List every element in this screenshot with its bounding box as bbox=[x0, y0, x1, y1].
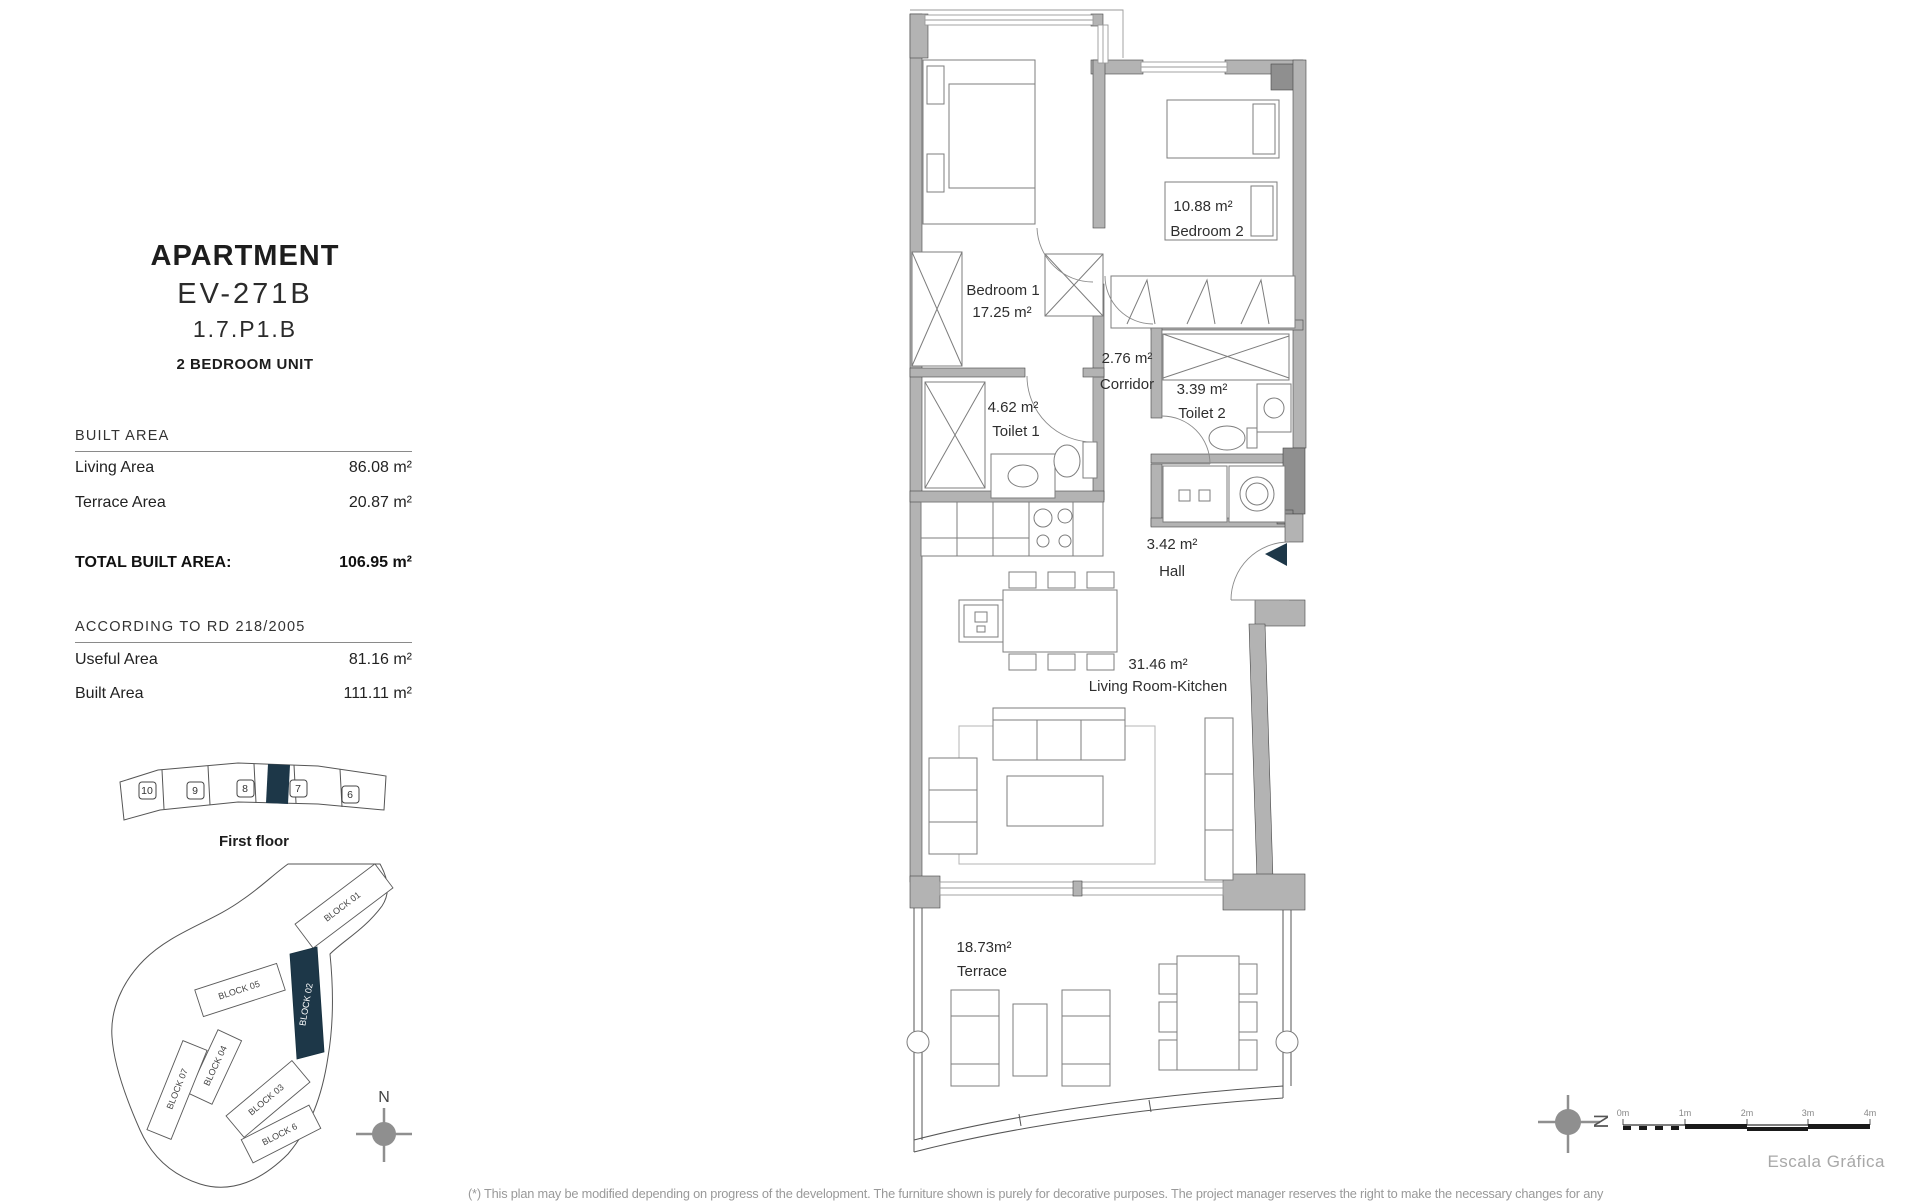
living-area: 31.46 m² bbox=[1128, 656, 1187, 673]
chaise-lounge bbox=[929, 758, 977, 854]
toilet1-area: 4.62 m² bbox=[988, 399, 1039, 416]
chair bbox=[1159, 1040, 1177, 1070]
toilet2-name: Toilet 2 bbox=[1178, 405, 1226, 422]
outdoor-dining-table bbox=[1177, 956, 1239, 1070]
scale-tick: 3m bbox=[1802, 1108, 1815, 1118]
unit-number: 8 bbox=[242, 783, 248, 795]
unit-type: 2 BEDROOM UNIT bbox=[85, 356, 405, 373]
chair bbox=[1159, 1002, 1177, 1032]
toilet2-area: 3.39 m² bbox=[1177, 381, 1228, 398]
chair bbox=[1239, 1040, 1257, 1070]
area-label: Terrace Area bbox=[75, 494, 166, 512]
column bbox=[1276, 1031, 1298, 1053]
terrace-balustrade bbox=[914, 1086, 1283, 1152]
total-built-area-row: TOTAL BUILT AREA: 106.95 m² bbox=[75, 554, 412, 572]
unit-code: EV-271B bbox=[85, 278, 405, 311]
tv-sideboard bbox=[1205, 718, 1233, 880]
unit-badges: 10 9 8 7 6 bbox=[139, 780, 359, 803]
lounge-chair bbox=[1062, 990, 1110, 1086]
toilet2-fixtures bbox=[1163, 334, 1291, 522]
chair bbox=[1239, 1002, 1257, 1032]
hall-area: 3.42 m² bbox=[1147, 536, 1198, 553]
wardrobe bbox=[1111, 276, 1295, 328]
area-label: Useful Area bbox=[75, 651, 158, 669]
bedroom1-area: 17.25 m² bbox=[972, 304, 1031, 321]
area-value: 111.11 m² bbox=[344, 685, 412, 703]
north-label: N bbox=[1589, 1114, 1611, 1128]
sink bbox=[1257, 384, 1291, 432]
column bbox=[907, 1031, 929, 1053]
vanity-sink bbox=[991, 454, 1055, 498]
area-value: 86.08 m² bbox=[349, 459, 412, 477]
toilet-cistern bbox=[1083, 442, 1097, 478]
chair bbox=[1009, 654, 1036, 670]
single-bed bbox=[1167, 100, 1279, 158]
sofa bbox=[993, 708, 1125, 760]
north-label: N bbox=[378, 1089, 390, 1106]
selected-unit bbox=[266, 764, 290, 804]
chair bbox=[1048, 572, 1075, 588]
entrance-arrow-icon bbox=[1265, 543, 1287, 566]
unit-number: 7 bbox=[295, 783, 301, 795]
apartment-title: APARTMENT bbox=[85, 240, 405, 273]
area-value: 20.87 m² bbox=[349, 494, 412, 512]
scale-tick: 2m bbox=[1741, 1108, 1754, 1118]
toilet-cistern bbox=[1247, 428, 1257, 448]
window-post bbox=[1073, 881, 1082, 896]
lounge-chair bbox=[951, 990, 999, 1086]
unit-number: 6 bbox=[347, 789, 353, 801]
dining-table bbox=[1003, 590, 1117, 652]
terrace-name: Terrace bbox=[957, 963, 1007, 980]
dining-set bbox=[1003, 572, 1117, 670]
title-block: APARTMENT EV-271B 1.7.P1.B 2 BEDROOM UNI… bbox=[85, 240, 405, 373]
scale-tick: 0m bbox=[1617, 1108, 1630, 1118]
chair bbox=[1009, 572, 1036, 588]
coffee-table bbox=[1007, 776, 1103, 826]
built-area-header: BUILT AREA bbox=[75, 428, 412, 452]
floor-plan-page: { "title_block": { "title": "APARTMENT",… bbox=[0, 0, 1920, 1200]
living-name: Living Room-Kitchen bbox=[1089, 678, 1227, 695]
scale-tick: 1m bbox=[1679, 1108, 1692, 1118]
north-compass-icon: N bbox=[356, 1089, 412, 1162]
kitchen-counter bbox=[921, 502, 1103, 556]
chair bbox=[1159, 964, 1177, 994]
kitchen-island bbox=[959, 600, 1003, 642]
side-table bbox=[1013, 1004, 1047, 1076]
built-area-row: Living Area 86.08 m² bbox=[75, 459, 412, 477]
unit-number: 9 bbox=[192, 785, 198, 797]
area-label: Built Area bbox=[75, 685, 143, 703]
unit-ref: 1.7.P1.B bbox=[85, 316, 405, 343]
toilet-bowl bbox=[1054, 445, 1080, 477]
disclaimer-text: (*) This plan may be modified depending … bbox=[468, 1186, 1603, 1201]
total-value: 106.95 m² bbox=[339, 554, 412, 572]
unit-number: 10 bbox=[141, 785, 153, 797]
hall-name: Hall bbox=[1159, 563, 1185, 580]
scale-caption: Escala Gráfica bbox=[1700, 1152, 1885, 1172]
scale-bar: 0m 1m 2m 3m 4m bbox=[1615, 1105, 1895, 1145]
corridor-area: 2.76 m² bbox=[1102, 350, 1153, 367]
chair bbox=[1239, 964, 1257, 994]
area-label: Living Area bbox=[75, 459, 154, 477]
toilet-bowl bbox=[1209, 426, 1245, 450]
toilet1-name: Toilet 1 bbox=[992, 423, 1040, 440]
rd-row: Built Area 111.11 m² bbox=[75, 685, 412, 703]
bedroom1-name: Bedroom 1 bbox=[966, 282, 1039, 299]
bedroom2-name: Bedroom 2 bbox=[1170, 223, 1243, 240]
living-room-furniture bbox=[929, 708, 1233, 880]
apartment-floor-plan: Bedroom 1 17.25 m² 10.88 m² Bedroom 2 2.… bbox=[897, 4, 1317, 1166]
total-label: TOTAL BUILT AREA: bbox=[75, 554, 231, 572]
first-floor-strip: 10 9 8 7 6 bbox=[118, 758, 390, 830]
site-plan: BLOCK 01 BLOCK 02 BLOCK 05 BLOCK 04 BLOC… bbox=[92, 862, 422, 1194]
chair bbox=[1048, 654, 1075, 670]
scale-tick: 4m bbox=[1864, 1108, 1877, 1118]
chair bbox=[1087, 572, 1114, 588]
double-bed bbox=[923, 60, 1035, 224]
area-value: 81.16 m² bbox=[349, 651, 412, 669]
corridor-name: Corridor bbox=[1100, 376, 1154, 393]
bedroom2-area: 10.88 m² bbox=[1173, 198, 1232, 215]
north-compass-icon: N bbox=[1530, 1085, 1620, 1165]
chair bbox=[1087, 654, 1114, 670]
washing-machine bbox=[1229, 466, 1285, 522]
rd-header: ACCORDING TO RD 218/2005 bbox=[75, 619, 412, 643]
terrace-area: 18.73m² bbox=[956, 939, 1011, 956]
rd-row: Useful Area 81.16 m² bbox=[75, 651, 412, 669]
built-area-row: Terrace Area 20.87 m² bbox=[75, 494, 412, 512]
first-floor-caption: First floor bbox=[118, 833, 390, 850]
utility-cabinet bbox=[1163, 466, 1227, 522]
